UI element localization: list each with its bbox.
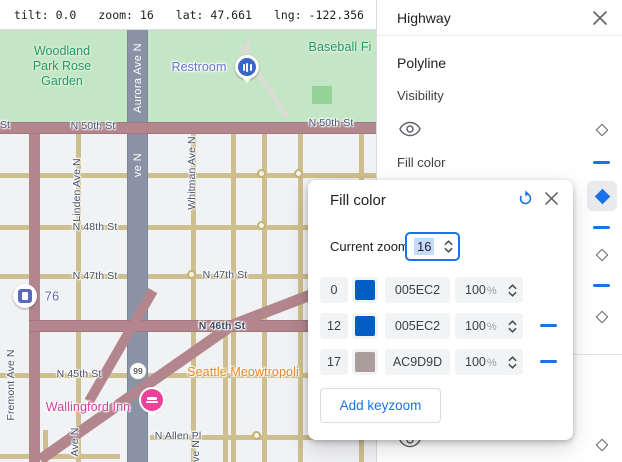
eye-icon [399,121,421,137]
keyzoom-diamond-filled-icon [594,188,610,204]
polyline-section-title: Polyline [397,55,446,71]
restroom-pin[interactable] [235,55,259,79]
baseball-field-label: Baseball Fi [309,40,372,54]
keyzoom-diamond-icon[interactable] [596,249,609,262]
up-down-chevrons-icon[interactable] [508,284,517,297]
add-keyzoom-button[interactable]: Add keyzoom [320,388,441,423]
keyzoom-level-field[interactable]: 0 [320,277,348,303]
reset-button[interactable] [513,186,537,210]
keyzoom-dash-icon[interactable] [593,284,610,287]
street-label-n48th: N 48th St [73,221,118,233]
bed-icon [146,397,158,403]
gas-station-pin[interactable] [13,284,37,308]
restroom-icon [238,58,256,76]
intersection-node [294,169,303,178]
keyzoom-diamond-icon[interactable] [596,124,609,137]
up-down-chevrons-icon[interactable] [444,240,453,253]
hex-color-field[interactable]: 005EC2 [385,313,450,339]
opacity-stepper[interactable]: 100% [455,277,523,303]
intersection-node [252,431,261,440]
fill-color-dialog: Fill color Current zoom 16 0 005EC2 100% [308,180,573,440]
street-label-ave-n-fragment: Ave N [69,428,81,457]
up-down-chevrons-icon[interactable] [508,320,517,333]
keyzoom-level-field[interactable]: 17 [320,349,348,375]
visibility-label: Visibility [397,88,444,103]
color-swatch[interactable] [352,349,378,375]
current-zoom-label: Current zoom [330,239,409,254]
street-label-whitman: Whitman Ave N [186,136,198,209]
remove-keyzoom-button[interactable] [540,324,557,327]
panel-close-button[interactable] [588,6,612,30]
restroom-label: Restroom [172,60,227,74]
street-label-linden: Linden Ave N [71,158,83,221]
up-down-chevrons-icon[interactable] [508,356,517,369]
street-label-n46th: N 46th St [199,320,245,332]
street-label-n47th: N 47th St [73,270,118,282]
keyzoom-diamond-icon[interactable] [596,311,609,324]
park-building [312,86,332,104]
color-swatch[interactable] [352,277,378,303]
keyzoom-diamond-icon[interactable] [596,439,609,452]
street-label-n50th: N 50th St [309,117,354,129]
park-label: WoodlandPark RoseGarden [14,44,110,89]
dialog-close-button[interactable] [539,186,563,210]
street-label-aurora: Aurora Ave N [132,43,144,113]
current-zoom-stepper[interactable]: 16 [405,232,460,261]
street-label-n50th: N 50th St [71,120,116,132]
intersection-node [257,169,266,178]
color-swatch[interactable] [352,313,378,339]
intersection-node [257,221,266,230]
gas-pump-icon [18,289,32,303]
lat-readout: lat: 47.661 [176,8,252,22]
intersection-node [187,270,196,279]
poi-label-wallingford-inn: Wallingford Inn [46,400,130,414]
remove-keyzoom-button[interactable] [540,360,557,363]
tilt-readout: tilt: 0.0 [14,8,76,22]
street-label-n45th: N 45th St [57,368,102,380]
opacity-stepper[interactable]: 100% [455,349,523,375]
zoom-readout: zoom: 16 [98,8,153,22]
keyzoom-level-field[interactable]: 12 [320,313,348,339]
visibility-toggle[interactable] [399,121,421,142]
hex-color-field[interactable]: 005EC2 [385,277,450,303]
street-label-fremont: Fremont Ave N [5,349,17,420]
street-label-n47th: N 47th St [203,269,248,281]
close-icon [545,192,558,205]
road-minor [223,322,228,462]
street-label-fragment: St [0,119,10,131]
close-icon [593,11,607,25]
status-bar: tilt: 0.0 zoom: 16 lat: 47.661 lng: -122… [0,0,376,30]
keyzoom-dash-icon[interactable] [593,161,610,164]
hex-color-field[interactable]: AC9D9D [385,349,450,375]
lng-readout: lng: -122.356 [274,8,364,22]
fill-color-label: Fill color [397,155,445,170]
dialog-title: Fill color [330,192,386,209]
lodging-pin[interactable] [141,389,163,411]
map-style-editor: tilt: 0.0 zoom: 16 lat: 47.661 lng: -122… [0,0,622,462]
opacity-stepper[interactable]: 100% [455,313,523,339]
street-label-aurora-fragment: ve N [132,153,144,177]
reset-icon [517,190,534,207]
street-label-ave-n-fragment: ve N [190,440,202,462]
panel-title: Highway [397,10,451,26]
poi-label-76-station: 76 [45,289,60,304]
highway-99-shield: 99 [129,362,147,380]
keyzoom-dash-icon[interactable] [593,226,610,229]
poi-label-meowtropolitan: Seattle Meowtropoli [187,365,299,379]
road-minor [231,124,236,462]
current-zoom-value[interactable]: 16 [414,238,434,255]
road-minor [0,454,120,459]
keyzoom-selected[interactable] [587,181,617,211]
